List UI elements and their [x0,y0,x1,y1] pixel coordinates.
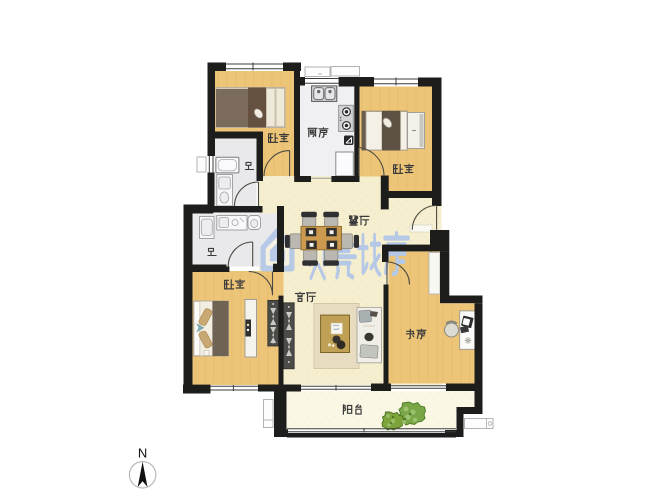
svg-text:N: N [138,446,147,461]
